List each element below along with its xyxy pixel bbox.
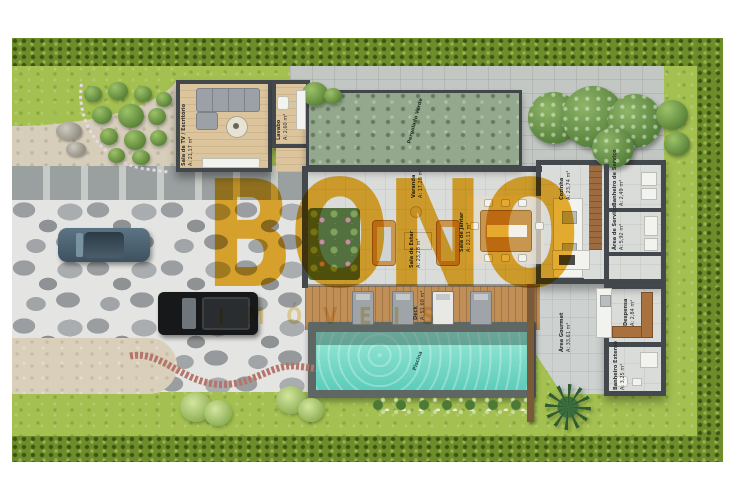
pool-ledge-shadow	[316, 332, 528, 345]
armchair-cushion	[377, 227, 391, 261]
armchair	[372, 220, 396, 266]
pickup-bed	[202, 297, 250, 330]
sofa	[196, 88, 260, 112]
label-lavabo: LavaboA: 2,60 m²	[277, 100, 289, 140]
site-plan-render: Sala de TV / EscritórioA: 21,17 m² Lavab…	[0, 0, 735, 502]
partition-service-2	[606, 252, 664, 256]
hedge-bottom	[12, 436, 723, 462]
light-bush-cluster	[204, 400, 232, 426]
pantry-shelf-horizontal	[612, 326, 642, 338]
garden-bush	[92, 106, 112, 124]
garden-bush	[150, 130, 167, 146]
shrub	[324, 88, 342, 104]
pouf	[410, 206, 422, 218]
garden-bush	[148, 108, 166, 125]
grill	[559, 255, 575, 265]
label-despensa: DespensaA: 2,84 m²	[624, 292, 636, 326]
sun-lounger	[470, 291, 492, 325]
service-tank	[644, 216, 658, 236]
dining-chair	[535, 222, 544, 230]
label-deck: DeckA: 51,68 m²	[414, 292, 426, 320]
armchair-cushion	[441, 227, 455, 261]
partition-kitchen-services	[604, 164, 609, 284]
label-sala-jantar: Sala de JantarA: 22,11 m²	[460, 220, 472, 252]
label-sala-estar: Sala de EstarA: 23,28 m²	[410, 236, 422, 268]
label-area-gourmet: Área GourmetA: 33,61 m²	[560, 316, 572, 352]
label-banheiro-servico: Banheiro de ServiçoA: 2,49 m²	[613, 170, 625, 206]
sun-lounger	[392, 291, 414, 325]
garden-bush	[108, 82, 128, 100]
sedan-windshield	[76, 233, 83, 257]
laundry-washer	[641, 172, 657, 186]
dining-chair	[501, 199, 510, 207]
armchair	[436, 220, 460, 266]
pickup-cab-window	[182, 298, 196, 329]
label-cozinha: CozinhaA: 23,74 m²	[560, 174, 572, 200]
hedge-right	[697, 38, 723, 462]
garden-bush	[118, 104, 144, 128]
gourmet-sink-counter	[596, 288, 612, 338]
dining-chair	[484, 199, 493, 207]
dining-chair	[501, 254, 510, 262]
label-banheiro-externo: Banheiro ExternoA: 3,25 m²	[614, 352, 626, 390]
living-glass-line	[305, 284, 540, 287]
gourmet-grill-counter	[552, 250, 590, 270]
round-table-center-dot	[233, 123, 239, 129]
garden-bush	[108, 148, 125, 163]
light-bush-cluster	[298, 398, 324, 422]
parked-car-sedan	[58, 228, 150, 262]
sun-lounger	[352, 291, 374, 325]
sedan-roof	[84, 232, 124, 258]
dining-chair	[484, 254, 493, 262]
garden-bush	[100, 128, 118, 145]
pantry-shelf-vertical	[641, 292, 653, 338]
garden-bush	[124, 130, 146, 150]
hedge-top	[12, 38, 723, 66]
sun-lounger	[432, 291, 454, 325]
garden-bush	[134, 86, 152, 102]
sideboard	[202, 158, 260, 168]
garden-bush	[156, 92, 172, 107]
lavabo-sink-counter	[296, 90, 306, 130]
dining-chair	[518, 199, 527, 207]
garden-bush	[132, 150, 150, 165]
label-sala-tv: Sala de TV / EscritórioA: 21,17 m²	[182, 104, 194, 166]
indoor-planter	[308, 208, 360, 280]
garden-fence-wall	[527, 284, 534, 422]
laundry-dryer	[641, 188, 657, 200]
garden-rock	[56, 122, 82, 140]
sink-externo	[632, 378, 642, 386]
table-runner	[487, 225, 527, 237]
dining-table	[480, 210, 532, 252]
label-varanda: VarandaA: 17,28 m²	[412, 172, 424, 198]
parked-pickup-truck	[158, 292, 258, 335]
flower-bed-row	[372, 396, 534, 418]
label-area-servico: Área de ServiçoA: 5,92 m²	[613, 216, 625, 250]
service-machine	[644, 238, 658, 251]
shrub	[664, 132, 690, 156]
shrub	[656, 100, 688, 130]
wood-feature-wall	[589, 165, 602, 250]
gourmet-sink	[600, 295, 611, 307]
palm-tree	[545, 384, 591, 430]
partition-kitchen-gourmet	[538, 278, 584, 283]
sofa-chaise	[196, 112, 218, 130]
garden-bush	[84, 86, 102, 102]
dining-chair	[518, 254, 527, 262]
shower	[640, 352, 658, 368]
island-sink	[562, 211, 577, 224]
garden-rock	[66, 142, 86, 156]
